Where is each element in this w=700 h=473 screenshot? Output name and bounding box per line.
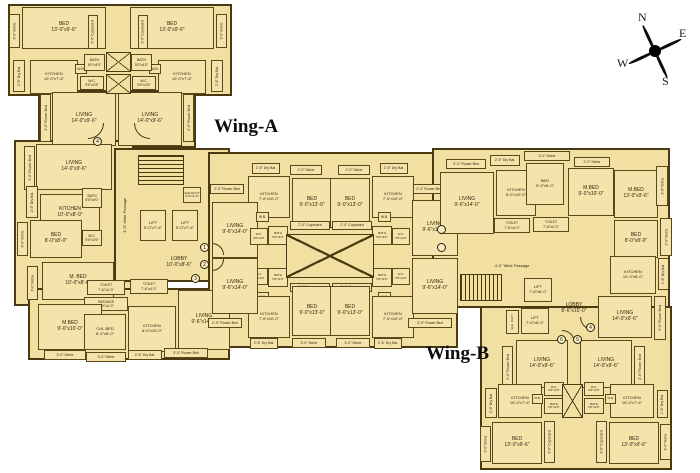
bath-a1: BATH 5'0"x4'0" xyxy=(84,54,105,71)
wing-b-title: Wing-B xyxy=(426,343,489,365)
wc-a2: W.C. 5'0"x2'6" xyxy=(132,76,156,90)
mbed-wb-2: M.BED 13'-0"x9'-6" xyxy=(614,170,658,218)
staircase xyxy=(138,155,184,185)
passage-wing-b: 4'-0" Wide Passage xyxy=(452,258,572,274)
drybal-a2: 2'-6" Dry Bal. xyxy=(211,60,223,92)
bath-ca-tl: BATH 5'0"x4'0" xyxy=(268,226,288,245)
kitchen-a4: KITCHEN 8'-0"x10'-0" xyxy=(128,306,176,352)
bath-wb-3: BATH 5'0"x4'0" xyxy=(544,398,564,414)
flowerbed-ca-bl2: 2'-0" Flower Bed xyxy=(208,318,242,328)
niche-a4a: 3'-0" Niche xyxy=(44,350,86,360)
flowerbed-wb-t: 3'-0" Flower Bed xyxy=(446,159,486,169)
bed-a3: BED 8'-0"x8'-0" xyxy=(30,220,82,258)
entrance-number-badge: 4 xyxy=(586,323,595,332)
flowerbed-wb-v2: 2'-0" Flower Bed xyxy=(502,346,513,388)
living-wb-2: LIVING 14'-0"x9'-6" xyxy=(598,296,652,338)
lift-wing-b-1: LIFT 7'-6"x6'-0" xyxy=(524,278,552,302)
wb-wb-4: W.B. xyxy=(605,394,616,404)
drybal-ca-tl: 2'-6" Dry Bal. xyxy=(252,163,280,174)
bed-wb-2: BED 8'-0"x8'-0" xyxy=(614,220,658,258)
entrance-number-badge: 5 xyxy=(573,335,582,344)
duct-shaft xyxy=(106,74,131,94)
wb-ca-tl: W.B. xyxy=(256,212,269,222)
door-pivot-circle xyxy=(437,243,446,252)
wing-a-title: Wing-A xyxy=(214,116,278,138)
niche-ca-bl: 3'-0" Niche xyxy=(292,338,326,348)
compass-label-south: S xyxy=(662,74,669,89)
bath-wb-4: BATH 5'0"x4'0" xyxy=(584,398,604,414)
flowerbed-wb-v3: 2'-6" Flower Bed xyxy=(634,346,645,388)
entrance-number-badge: 3 xyxy=(191,274,200,283)
kitchen-ca-br: KITCHEN 7'-6"x10'-0" xyxy=(372,296,414,338)
wc-ca-tl: W.C. 5'0"x2'6" xyxy=(250,228,268,245)
drybal-ca-tr: 2'-6" Dry Bal. xyxy=(380,163,408,174)
living-a2: LIVING 14'-0"x9'-6" xyxy=(118,92,182,146)
entrance-number-badge: 6 xyxy=(557,335,566,344)
bed-wb-1: BED 9'-0"x8'-0" xyxy=(526,163,564,205)
flowerbed-a3: 3'-0" Flower Bed xyxy=(24,146,35,190)
flowerbed-ca-l: 2'-0" Flower Bed xyxy=(210,184,244,194)
bath-a2: BATH 5'0"x4'0" xyxy=(131,54,152,71)
compass-label-north: N xyxy=(638,10,647,25)
drybal-a4: 2'-6" Dry Bal. xyxy=(128,350,162,360)
wb-ca-tr: W.B. xyxy=(378,212,391,222)
ele-duct-wing-b: ELE. DUCT xyxy=(506,310,519,334)
living-wb-4: LIVING 14'-0"x9'-6" xyxy=(580,340,632,388)
niche-wb-3: 3'-0" Niche xyxy=(480,426,491,462)
niche-a2: 3'-0" Niche xyxy=(216,14,227,48)
wb-wb-3: W.B. xyxy=(532,394,543,404)
staircase xyxy=(460,274,502,301)
drybal-ca-br: 2'-6" Dry Bal. xyxy=(374,338,402,349)
flowerbed-a2: 2'-6" Flower Bed xyxy=(183,94,194,142)
compass-label-east: E xyxy=(679,26,686,41)
lift-wing-b-2: LIFT 7'-6"x6'-0" xyxy=(521,308,549,334)
drybal-a3: 2'-6" Dry Bal. xyxy=(26,186,38,218)
living-wb-1: LIVING 9'-6"x14'-0" xyxy=(440,172,494,234)
niche-wb-v1: 2'-6" Niche xyxy=(656,166,668,206)
bath-ca-bl: BATH 5'0"x4'0" xyxy=(268,268,288,287)
bath-ca-tr: BATH 5'0"x4'0" xyxy=(372,226,392,245)
toilet-wing-a-2: TOILET 7'-6"x4'-0" xyxy=(130,279,168,294)
duct-shaft xyxy=(562,384,583,418)
kitchen-a2: KITCHEN 10'-0"x7'-6" xyxy=(158,60,206,94)
door-pivot-circle xyxy=(437,225,446,234)
lift-wing-a-1: LIFT 5'-0"x7'-6" xyxy=(140,210,166,241)
wc-wb-3: W.C. 5'0"x2'6" xyxy=(544,382,564,396)
entrance-number-badge: 1 xyxy=(200,243,209,252)
niche-wb-t1: 3'-0" Niche xyxy=(524,151,570,161)
mbed-wb-1: M.BED 9'-0"x10'-0" xyxy=(568,168,614,216)
drybal-a1: 2'-6" Dry Bal. xyxy=(13,60,25,92)
wc-a3: W.C. 5'0"x2'6" xyxy=(82,230,102,246)
flowerbed-a4: 3'-0" Flower Bed xyxy=(164,348,208,358)
living-a1: LIVING 14'-0"x9'-6" xyxy=(52,92,116,146)
duct-shaft xyxy=(106,52,131,72)
cupboard-a2: 2'-0" Cupboard xyxy=(138,15,148,49)
kitchen-a1: KITCHEN 10'-0"x7'-6" xyxy=(30,60,78,94)
living-wb-3: LIVING 14'-0"x9'-6" xyxy=(516,340,568,388)
bed-wb-4: BED 13'-0"x9'-6" xyxy=(609,422,659,464)
niche-ca-tl: 2'-0" Niche xyxy=(290,165,322,175)
wc-wb-4: W.C. 5'0"x2'6" xyxy=(584,382,604,396)
wc-a1: W.C. 5'0"x2'6" xyxy=(80,76,104,90)
toilet-wing-a-1: TOILET 7'-6"x4'-0" xyxy=(87,280,125,295)
drybal-wb-3: 2'-6" Dry Bal. xyxy=(485,388,497,418)
flowerbed-a1: 3'-0" Flower Bed xyxy=(40,94,51,142)
entrance-number-badge: 4 xyxy=(93,137,102,146)
toilet-wb-2: TOILET 7'-6"x4'-0" xyxy=(533,217,569,232)
niche-wb-v2: 2'-6" Niche xyxy=(660,218,672,256)
entrance-number-badge: 2 xyxy=(200,260,209,269)
niche-a1: 3'-0" Niche xyxy=(9,14,20,48)
drybal-wb-v1: 1'-6" Dry Bal. xyxy=(658,258,669,290)
passage-wing-a: 4'-0" Wide Passage xyxy=(116,160,134,270)
niche-a4b: 3'-0" Niche xyxy=(86,352,126,362)
lift-wing-a-2: LIFT 5'-0"x7'-6" xyxy=(172,210,198,241)
living-a3: LIVING 14'-0"x9'-6" xyxy=(36,144,112,190)
wc-ca-tr: W.C. 5'0"x2'6" xyxy=(392,228,410,245)
drybal-wb-t: 2'-6" Dry Bal. xyxy=(490,155,520,166)
compass-rose-icon: N E S W xyxy=(616,12,694,92)
flowerbed-ca-br2: 3'-0" Flower Bed xyxy=(408,318,452,328)
chl-bed-a4: CHL.BED 8'-0"x8'-0" xyxy=(84,314,126,350)
niche-a3a: 3'-0" Niche xyxy=(17,222,28,256)
cupboard-wb-3: 2'-0" Cupboard xyxy=(544,421,555,463)
floor-plan-canvas: Wing-A Wing-B N E S W BED 13'-0"x9'-6"3'… xyxy=(0,0,700,473)
drybal-ca-bl: 2'-6" Dry Bal. xyxy=(250,338,278,349)
niche-ca-tr: 2'-0" Niche xyxy=(338,165,370,175)
cupboard-ca-tr: 2'-0" Cupboard xyxy=(332,221,372,230)
cupboard-wb-4: 2'-0" Cupboard xyxy=(596,421,607,463)
duct-shaft xyxy=(286,234,374,278)
bath-a3: BATH 5'0"x4'0" xyxy=(82,188,102,208)
cupboard-ca-tl: 2'-0" Cupboard xyxy=(290,221,330,230)
niche-ca-br: 3'-0" Niche xyxy=(336,338,370,348)
ele-duct-wing-a: ELE.DUCT 4'-0"x4'-0" xyxy=(183,187,201,203)
toilet-wb-1: TOILET 7'-6"x4'-0" xyxy=(494,218,530,233)
kitchen-wb-2: KITCHEN 10'-0"x8'-0" xyxy=(610,256,656,294)
compass-center-dot xyxy=(649,45,661,57)
cupboard-a1: 2'-0" Cupboard xyxy=(88,15,98,49)
bed-ca-bl: BED 9'-0"x13'-0" xyxy=(292,286,332,336)
bath-ca-br: BATH 5'0"x4'0" xyxy=(372,268,392,287)
niche-wb-t2: 2'-0" Niche xyxy=(574,157,610,167)
flowerbed-wb-v1: 3'-0" Flower Bed xyxy=(654,296,666,340)
drybal-wb-4: 1'-6" Dry Bal. xyxy=(657,390,668,418)
wc-ca-br: W.C. 5'0"x2'6" xyxy=(392,268,410,285)
compass-label-west: W xyxy=(617,56,628,71)
kitchen-wb-4: KITCHEN 10'-0"x7'-6" xyxy=(610,384,654,418)
niche-a3b: 3'-0" Niche xyxy=(27,266,38,300)
bed-wb-3: BED 13'-0"x9'-6" xyxy=(492,422,542,464)
niche-wb-4: 3'-0" Niche xyxy=(660,424,671,460)
bed-ca-br: BED 9'-0"x13'-0" xyxy=(330,286,370,336)
